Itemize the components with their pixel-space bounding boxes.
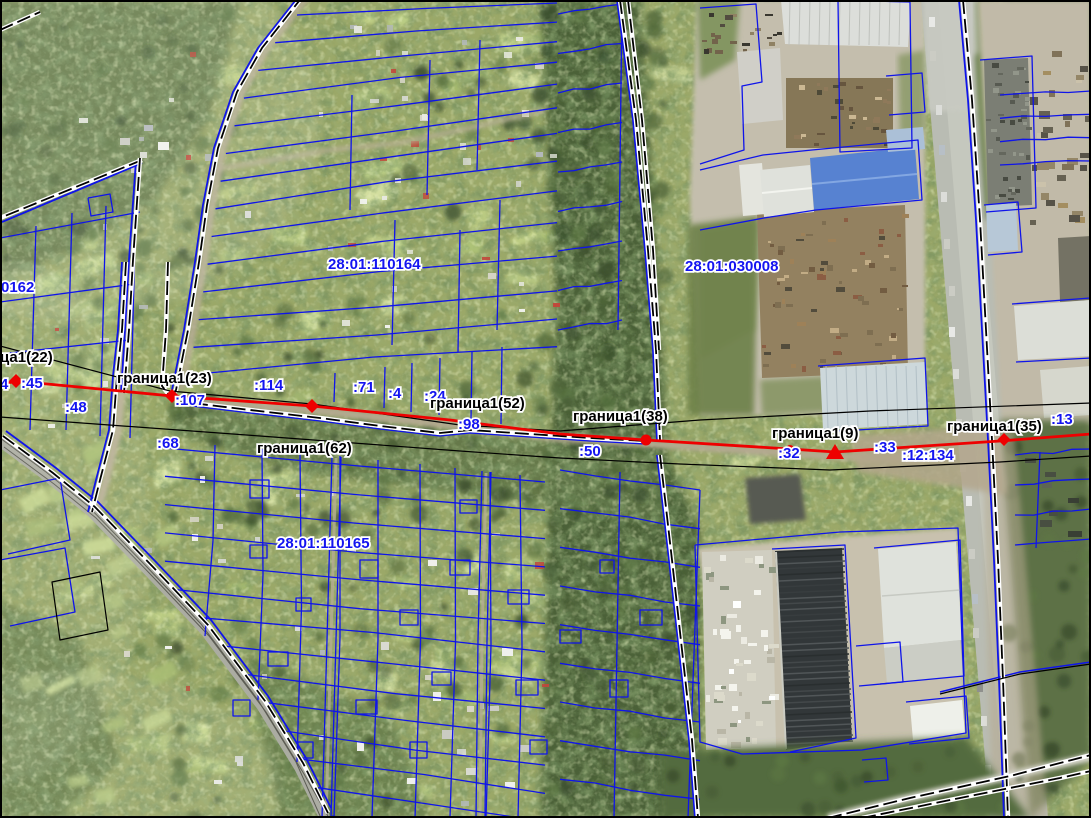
svg-text::45: :45 xyxy=(21,375,43,392)
svg-text::68: :68 xyxy=(157,435,179,452)
svg-text::98: :98 xyxy=(458,416,480,433)
svg-text::12:134: :12:134 xyxy=(902,447,954,464)
svg-text:граница1(62): граница1(62) xyxy=(257,440,352,457)
svg-text:28:01:030008: 28:01:030008 xyxy=(685,258,778,275)
svg-text::71: :71 xyxy=(353,379,375,396)
svg-text::13: :13 xyxy=(1051,411,1073,428)
svg-text:ца1(22): ца1(22) xyxy=(0,349,53,366)
svg-text::4: :4 xyxy=(388,385,402,402)
svg-text:28:01:110164: 28:01:110164 xyxy=(328,256,421,273)
svg-text:граница1(52): граница1(52) xyxy=(430,395,525,412)
svg-text::32: :32 xyxy=(778,445,800,462)
svg-text:0162: 0162 xyxy=(1,279,34,296)
svg-text::107: :107 xyxy=(175,392,205,409)
svg-text:граница1(23): граница1(23) xyxy=(117,370,212,387)
svg-text::50: :50 xyxy=(579,443,601,460)
svg-text::114: :114 xyxy=(254,377,284,394)
svg-text:граница1(35): граница1(35) xyxy=(947,418,1042,435)
svg-text:28:01:110165: 28:01:110165 xyxy=(277,535,370,552)
svg-text:граница1(9): граница1(9) xyxy=(772,425,858,442)
svg-text:граница1(38): граница1(38) xyxy=(573,408,668,425)
svg-text::33: :33 xyxy=(874,439,896,456)
svg-text::48: :48 xyxy=(65,399,87,416)
